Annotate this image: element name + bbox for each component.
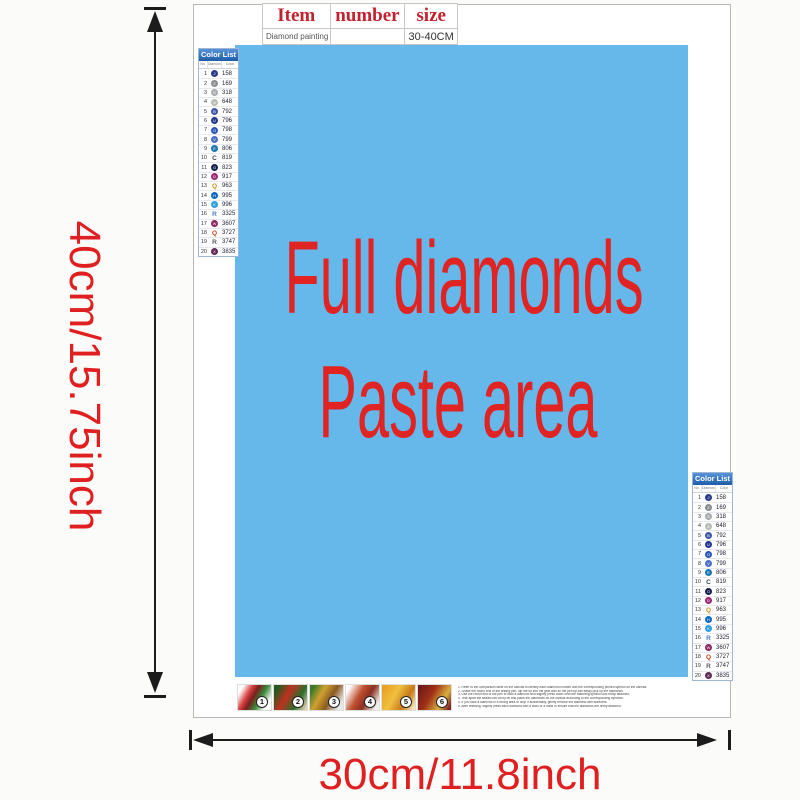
dmc-color-code: 796: [715, 542, 731, 548]
dmc-color-code: 318: [715, 514, 731, 520]
horizontal-arrow-right-cap: [728, 730, 731, 750]
color-list-rows: 1J1582Z1693S3184A6485B7926U7967O7988V799…: [199, 69, 238, 256]
vertical-arrow-bottom-cap: [144, 695, 166, 698]
color-list-row: 10C819: [199, 153, 238, 162]
color-list-row: 15K996: [199, 200, 238, 209]
diamond-letter-symbol: R: [706, 635, 711, 642]
color-list-right: Color List No. Diamond Color 1J1582Z1693…: [692, 472, 733, 681]
dmc-color-code: 799: [221, 137, 237, 143]
dmc-color-code: 796: [221, 118, 237, 124]
diamond-dot-icon: U: [211, 117, 218, 124]
color-row-number: 1: [693, 495, 702, 501]
color-row-number: 8: [199, 137, 208, 143]
diamond-dot-icon: Z: [211, 80, 218, 87]
item-table-value-row: Diamond painting 30-40CM: [263, 29, 458, 45]
vertical-dimension-line: [154, 28, 156, 676]
color-row-number: 1: [199, 71, 208, 77]
diamond-symbol-icon: B: [208, 108, 221, 115]
color-row-number: 11: [693, 589, 702, 595]
diamond-dot-icon: W: [705, 644, 712, 651]
color-row-number: 20: [693, 673, 702, 679]
diamond-symbol-icon: V: [702, 560, 715, 567]
dmc-color-code: 3835: [221, 249, 237, 255]
diamond-dot-icon: O: [705, 551, 712, 558]
diamond-letter-symbol: R: [212, 211, 217, 218]
arrow-right-icon: [697, 733, 717, 747]
height-dimension-label: 40cm/15.75inch: [59, 221, 109, 532]
color-list-row: 9E806: [693, 568, 732, 577]
color-list-row: 19R3747: [199, 237, 238, 246]
diamond-letter-symbol: Q: [706, 654, 711, 661]
diamond-symbol-icon: R: [208, 211, 221, 218]
dmc-color-code: 995: [715, 617, 731, 623]
color-row-number: 16: [199, 211, 208, 217]
column-color: Color: [716, 485, 732, 492]
dmc-color-code: 798: [221, 127, 237, 133]
diamond-dot-icon: E: [705, 569, 712, 576]
diamond-dot-icon: E: [211, 145, 218, 152]
color-list-row: 9E806: [199, 144, 238, 153]
step-number-badge: 2: [292, 696, 304, 708]
number-value: [330, 29, 405, 45]
color-list-row: 6U796: [199, 116, 238, 125]
arrow-down-icon: [147, 672, 163, 693]
color-row-number: 18: [199, 230, 208, 236]
color-row-number: 18: [693, 654, 702, 660]
color-row-number: 2: [693, 505, 702, 511]
color-row-number: 4: [199, 99, 208, 105]
color-row-number: 9: [693, 570, 702, 576]
column-no: No.: [693, 485, 702, 492]
paste-area-title-line1: Full diamonds: [284, 226, 643, 329]
diamond-letter-symbol: Q: [706, 607, 711, 614]
color-list-row: 17W3607: [693, 643, 732, 652]
color-row-number: 6: [693, 542, 702, 548]
color-row-number: 12: [199, 174, 208, 180]
color-list-title: Color List: [199, 49, 238, 61]
color-list-row: 1J158: [693, 493, 732, 502]
diamond-symbol-icon: R: [208, 239, 221, 246]
color-list-row: 2Z169: [199, 78, 238, 87]
color-list-row: 20X3835: [199, 247, 238, 256]
diamond-symbol-icon: C: [702, 579, 715, 586]
color-row-number: 5: [693, 533, 702, 539]
color-list-row: 13Q963: [693, 605, 732, 614]
diamond-symbol-icon: O: [702, 588, 715, 595]
dmc-color-code: 823: [221, 165, 237, 171]
dmc-color-code: 169: [221, 81, 237, 87]
diamond-symbol-icon: Q: [208, 230, 221, 237]
diamond-symbol-icon: J: [208, 70, 221, 77]
diamond-symbol-icon: R: [702, 635, 715, 642]
diamond-symbol-icon: E: [208, 145, 221, 152]
dmc-color-code: 3325: [221, 211, 237, 217]
dmc-color-code: 158: [715, 495, 731, 501]
diamond-dot-icon: Z: [705, 504, 712, 511]
diamond-dot-icon: V: [705, 560, 712, 567]
diamond-dot-icon: V: [211, 136, 218, 143]
dmc-color-code: 798: [715, 551, 731, 557]
dmc-color-code: 169: [715, 505, 731, 511]
diamond-symbol-icon: Q: [702, 607, 715, 614]
column-diamond: Diamond: [208, 61, 222, 68]
diamond-symbol-icon: S: [208, 89, 221, 96]
paste-area-title-line2: Paste area: [319, 350, 598, 453]
color-list-row: 12D917: [693, 596, 732, 605]
diamond-dot-icon: J: [705, 494, 712, 501]
color-list-row: 7O798: [693, 549, 732, 558]
color-list-row: 18Q3727: [693, 652, 732, 661]
dmc-color-code: 3727: [221, 230, 237, 236]
diamond-symbol-icon: A: [208, 99, 221, 106]
diamond-symbol-icon: A: [702, 523, 715, 530]
diamond-dot-icon: H: [705, 616, 712, 623]
step-thumbnail-3: 3: [309, 684, 344, 711]
step-thumbnail-1: 1: [237, 684, 272, 711]
diamond-dot-icon: H: [211, 192, 218, 199]
diamond-symbol-icon: O: [702, 551, 715, 558]
color-list-rows: 1J1582Z1693S3184A6485B7926U7967O7988V799…: [693, 493, 732, 680]
step-thumbnail-5: 5: [381, 684, 416, 711]
diamond-dot-icon: D: [705, 597, 712, 604]
item-table-header-row: Item number size: [263, 4, 458, 29]
diamond-symbol-icon: H: [208, 192, 221, 199]
dmc-color-code: 806: [715, 570, 731, 576]
dmc-color-code: 3607: [715, 645, 731, 651]
color-list-row: 17W3607: [199, 219, 238, 228]
diamond-symbol-icon: Q: [702, 654, 715, 661]
color-list-row: 14H995: [199, 190, 238, 199]
color-list-row: 20X3835: [693, 671, 732, 680]
instruction-line: 6. After finishing, slightly press each …: [458, 705, 700, 709]
diamond-symbol-icon: Z: [702, 504, 715, 511]
color-row-number: 15: [693, 626, 702, 632]
diamond-dot-icon: O: [211, 164, 218, 171]
diamond-dot-icon: W: [211, 220, 218, 227]
color-row-number: 13: [693, 607, 702, 613]
color-row-number: 7: [199, 127, 208, 133]
color-list-row: 11O823: [199, 162, 238, 171]
diamond-symbol-icon: D: [702, 597, 715, 604]
color-row-number: 10: [199, 155, 208, 161]
step-thumbnail-6: 6: [417, 684, 452, 711]
step-number-badge: 3: [328, 696, 340, 708]
color-list-row: 12D917: [199, 172, 238, 181]
dmc-color-code: 648: [715, 523, 731, 529]
dmc-color-code: 996: [715, 626, 731, 632]
diamond-symbol-icon: B: [702, 532, 715, 539]
dmc-color-code: 996: [221, 202, 237, 208]
color-list-row: 4A648: [199, 97, 238, 106]
diamond-symbol-icon: X: [208, 248, 221, 255]
diamond-symbol-icon: O: [208, 164, 221, 171]
color-list-row: 18Q3727: [199, 228, 238, 237]
dmc-color-code: 3835: [715, 673, 731, 679]
diamond-symbol-icon: K: [702, 625, 715, 632]
size-value: 30-40CM: [405, 29, 458, 45]
size-header: size: [405, 4, 458, 29]
step-number-badge: 5: [400, 696, 412, 708]
diamond-symbol-icon: V: [208, 136, 221, 143]
diamond-symbol-icon: S: [702, 513, 715, 520]
color-list-row: 1J158: [199, 69, 238, 78]
color-list-row: 4A648: [693, 521, 732, 530]
diamond-dot-icon: K: [211, 201, 218, 208]
item-header: Item: [263, 4, 331, 29]
color-list-row: 19R3747: [693, 661, 732, 670]
color-list-row: 2Z169: [693, 502, 732, 511]
diamond-symbol-icon: U: [702, 541, 715, 548]
dmc-color-code: 799: [715, 561, 731, 567]
diamond-dot-icon: X: [211, 248, 218, 255]
diamond-dot-icon: S: [211, 89, 218, 96]
dmc-color-code: 648: [221, 99, 237, 105]
dmc-color-code: 3607: [221, 221, 237, 227]
color-row-number: 15: [199, 202, 208, 208]
color-row-number: 14: [693, 617, 702, 623]
color-list-row: 8V799: [693, 558, 732, 567]
dmc-color-code: 819: [221, 155, 237, 161]
diamond-letter-symbol: Q: [212, 230, 217, 237]
vertical-arrow-top-cap: [144, 7, 166, 10]
color-list-columns: No. Diamond Color: [199, 61, 238, 69]
dmc-color-code: 819: [715, 579, 731, 585]
color-row-number: 19: [199, 239, 208, 245]
dmc-color-code: 995: [221, 193, 237, 199]
color-list-row: 15K996: [693, 624, 732, 633]
diamond-dot-icon: K: [705, 625, 712, 632]
dmc-color-code: 3747: [715, 663, 731, 669]
diamond-dot-icon: O: [211, 127, 218, 134]
width-dimension-label: 30cm/11.8inch: [319, 750, 602, 800]
column-diamond: Diamond: [702, 485, 716, 492]
step-number-badge: 4: [364, 696, 376, 708]
dmc-color-code: 792: [221, 109, 237, 115]
diamond-symbol-icon: Q: [208, 183, 221, 190]
diamond-dot-icon: S: [705, 513, 712, 520]
dmc-color-code: 963: [715, 607, 731, 613]
diamond-letter-symbol: C: [706, 579, 711, 586]
diamond-symbol-icon: U: [208, 117, 221, 124]
diamond-dot-icon: D: [211, 173, 218, 180]
dmc-color-code: 823: [715, 589, 731, 595]
diamond-symbol-icon: E: [702, 569, 715, 576]
diamond-letter-symbol: R: [212, 239, 217, 246]
color-row-number: 2: [199, 81, 208, 87]
color-row-number: 10: [693, 579, 702, 585]
diamond-symbol-icon: O: [208, 127, 221, 134]
diamond-symbol-icon: C: [208, 155, 221, 162]
step-number-badge: 6: [436, 696, 448, 708]
color-list-row: 14H995: [693, 614, 732, 623]
color-row-number: 13: [199, 183, 208, 189]
color-list-title: Color List: [693, 473, 732, 485]
color-list-row: 3S318: [199, 88, 238, 97]
color-list-row: 11O823: [693, 586, 732, 595]
diamond-symbol-icon: D: [208, 173, 221, 180]
dmc-color-code: 806: [221, 146, 237, 152]
diamond-symbol-icon: Z: [208, 80, 221, 87]
color-row-number: 16: [693, 635, 702, 641]
color-row-number: 6: [199, 118, 208, 124]
color-row-number: 20: [199, 249, 208, 255]
diamond-letter-symbol: Q: [212, 183, 217, 190]
color-row-number: 5: [199, 109, 208, 115]
color-list-columns: No. Diamond Color: [693, 485, 732, 493]
color-list-row: 3S318: [693, 512, 732, 521]
color-row-number: 3: [199, 90, 208, 96]
color-list-row: 6U796: [693, 540, 732, 549]
dmc-color-code: 792: [715, 533, 731, 539]
diamond-symbol-icon: J: [702, 494, 715, 501]
color-row-number: 14: [199, 193, 208, 199]
step-thumbnail-4: 4: [345, 684, 380, 711]
diamond-letter-symbol: C: [212, 155, 217, 162]
item-value: Diamond painting: [263, 29, 331, 45]
dmc-color-code: 917: [715, 598, 731, 604]
instruction-text-block: 1. Refer to the comparison table on the …: [458, 686, 700, 708]
color-list-row: 5B792: [693, 530, 732, 539]
color-row-number: 12: [693, 598, 702, 604]
color-row-number: 19: [693, 663, 702, 669]
color-list-row: 7O798: [199, 125, 238, 134]
dmc-color-code: 917: [221, 174, 237, 180]
color-row-number: 7: [693, 551, 702, 557]
diamond-dot-icon: A: [705, 523, 712, 530]
product-infographic: Item number size Diamond painting 30-40C…: [0, 0, 800, 800]
color-list-row: 10C819: [693, 577, 732, 586]
color-row-number: 17: [693, 645, 702, 651]
dmc-color-code: 963: [221, 183, 237, 189]
color-row-number: 8: [693, 561, 702, 567]
dmc-color-code: 3325: [715, 635, 731, 641]
diamond-symbol-icon: H: [702, 616, 715, 623]
horizontal-dimension-line: [196, 739, 714, 741]
diamond-dot-icon: A: [211, 99, 218, 106]
diamond-dot-icon: J: [211, 70, 218, 77]
diamond-dot-icon: X: [705, 672, 712, 679]
step-thumbnail-2: 2: [273, 684, 308, 711]
dmc-color-code: 3727: [715, 654, 731, 660]
diamond-letter-symbol: R: [706, 663, 711, 670]
color-list-left: Color List No. Diamond Color 1J1582Z1693…: [198, 48, 239, 257]
color-row-number: 11: [199, 165, 208, 171]
horizontal-arrow-left-cap: [189, 730, 192, 750]
item-info-table: Item number size Diamond painting 30-40C…: [262, 3, 458, 45]
color-list-row: 5B792: [199, 106, 238, 115]
diamond-symbol-icon: K: [208, 201, 221, 208]
diamond-symbol-icon: W: [208, 220, 221, 227]
number-header: number: [330, 4, 405, 29]
diamond-dot-icon: O: [705, 588, 712, 595]
color-row-number: 3: [693, 514, 702, 520]
dmc-color-code: 158: [221, 71, 237, 77]
diamond-symbol-icon: X: [702, 672, 715, 679]
color-row-number: 17: [199, 221, 208, 227]
diamond-symbol-icon: R: [702, 663, 715, 670]
color-list-row: 16R3325: [693, 633, 732, 642]
color-row-number: 4: [693, 523, 702, 529]
column-no: No.: [199, 61, 208, 68]
color-row-number: 9: [199, 146, 208, 152]
diamond-dot-icon: B: [211, 108, 218, 115]
dmc-color-code: 3747: [221, 239, 237, 245]
column-color: Color: [222, 61, 238, 68]
step-number-badge: 1: [256, 696, 268, 708]
step-thumbnails: 123456: [237, 684, 453, 711]
diamond-dot-icon: U: [705, 541, 712, 548]
color-list-row: 16R3325: [199, 209, 238, 218]
diamond-symbol-icon: W: [702, 644, 715, 651]
dmc-color-code: 318: [221, 90, 237, 96]
color-list-row: 8V799: [199, 134, 238, 143]
diamond-dot-icon: B: [705, 532, 712, 539]
color-list-row: 13Q963: [199, 181, 238, 190]
